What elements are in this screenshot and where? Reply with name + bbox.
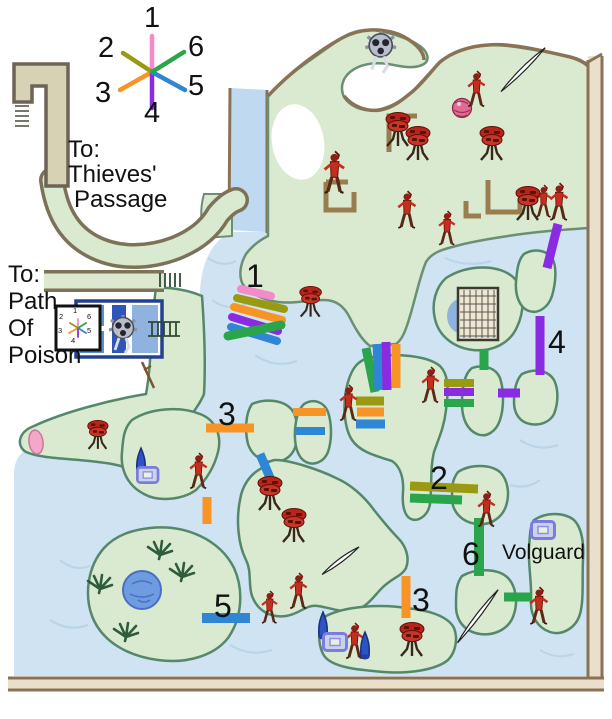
legend-line-2 xyxy=(123,53,152,72)
route-marker-4: 4 xyxy=(548,326,566,358)
mini-legend-number-5: 5 xyxy=(87,327,91,335)
route-4-segment xyxy=(386,342,387,390)
legend-number-1: 1 xyxy=(144,4,160,33)
thieves-passage-label-line1: To: xyxy=(68,138,100,162)
ladder-icon xyxy=(15,106,29,126)
route-6-segment xyxy=(410,498,462,500)
mini-legend-number-2: 2 xyxy=(59,313,63,321)
path-of-poison-label-line1: To: xyxy=(8,263,40,287)
thieves-passage-label-line2: Thieves' xyxy=(68,163,157,187)
mini-legend-number-3: 3 xyxy=(58,327,62,335)
route-marker-3-west: 3 xyxy=(218,398,236,430)
route-marker-5: 5 xyxy=(214,590,232,622)
frame-right-fill xyxy=(588,56,602,678)
chest-icon xyxy=(137,467,158,482)
legend-number-3: 3 xyxy=(95,79,111,108)
path-of-poison-label-line3: Of xyxy=(8,317,33,341)
island-r xyxy=(514,371,557,425)
route-marker-1: 1 xyxy=(246,260,264,292)
route-marker-6: 6 xyxy=(462,538,480,570)
mini-legend-number-6: 6 xyxy=(87,313,91,321)
pond-icon xyxy=(123,571,161,609)
thieves-corridor xyxy=(14,64,68,186)
island-v1 xyxy=(452,466,508,524)
route-marker-2: 2 xyxy=(430,462,448,494)
chest-icon xyxy=(324,634,347,651)
map-canvas xyxy=(0,0,612,719)
route-marker-3-south: 3 xyxy=(412,584,430,616)
thieves-passage-label-line3: Passage xyxy=(74,188,167,212)
legend-number-6: 6 xyxy=(188,33,204,62)
ladder-icon xyxy=(148,322,180,336)
orb-icon xyxy=(453,99,472,118)
chest-icon xyxy=(532,522,555,539)
frame-bottom-fill xyxy=(8,678,604,690)
game-map-page: 1 2 3 4 5 6 1 3 2 4 5 6 3 To: Thieves' P… xyxy=(0,0,612,719)
legend-line-5 xyxy=(152,72,185,90)
legend-number-4: 4 xyxy=(144,99,160,128)
legend-number-2: 2 xyxy=(98,34,114,63)
legend-line-3 xyxy=(120,72,152,90)
mini-legend-numbers: 1 2 3 4 5 6 xyxy=(56,306,100,350)
legend-number-5: 5 xyxy=(188,72,204,101)
volguard-label: Volguard xyxy=(502,542,585,563)
route-5-segment xyxy=(377,344,379,390)
legend-line-6 xyxy=(152,52,184,72)
path-of-poison-label-line2: Path xyxy=(8,290,57,314)
mini-legend-number-4: 4 xyxy=(71,337,75,345)
mini-legend-number-1: 1 xyxy=(73,307,77,315)
